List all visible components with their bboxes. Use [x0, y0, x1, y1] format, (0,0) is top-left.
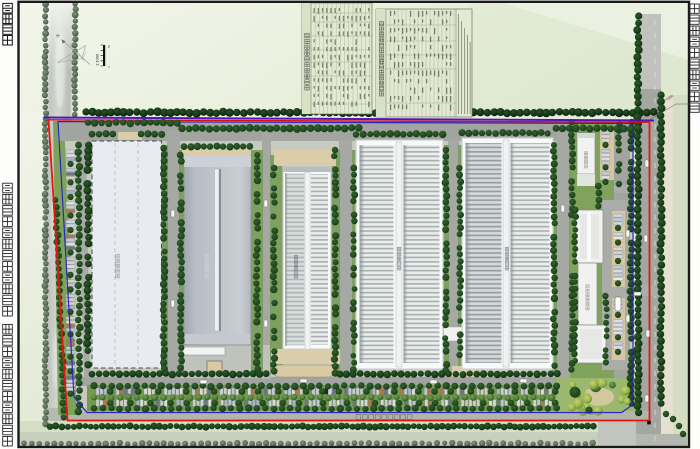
- svg-text:50: 50: [107, 44, 111, 48]
- svg-text:7303.6: 7303.6: [47, 250, 52, 262]
- svg-text:1:1000: 1:1000: [95, 53, 100, 66]
- svg-text:335: 335: [59, 410, 64, 417]
